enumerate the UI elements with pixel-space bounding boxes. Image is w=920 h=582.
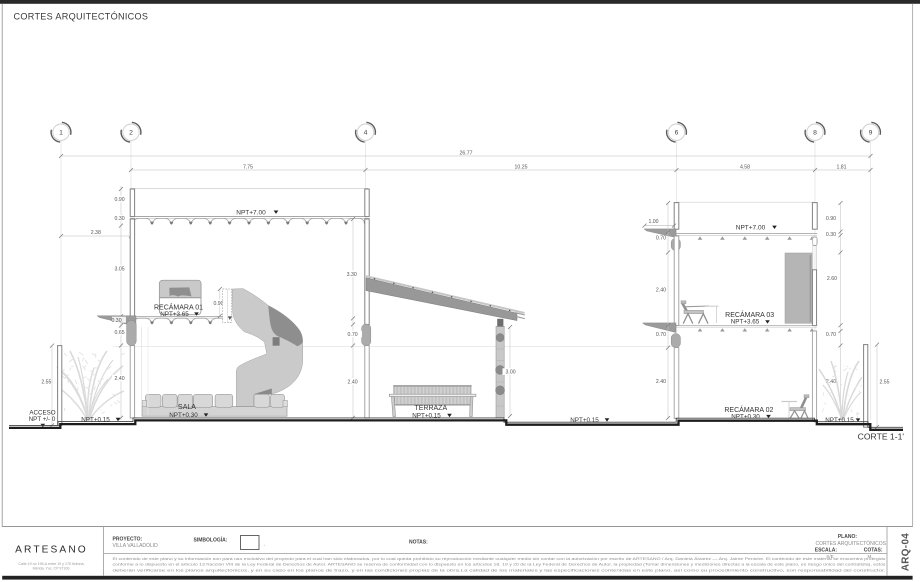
svg-text:0.90: 0.90 [115, 197, 125, 203]
svg-text:CORTES ARQUITECTÓNICOS: CORTES ARQUITECTÓNICOS [14, 12, 149, 22]
svg-text:CORTE 1-1': CORTE 1-1' [858, 431, 905, 441]
svg-text:2.40: 2.40 [656, 379, 666, 385]
svg-text:0.70: 0.70 [348, 332, 358, 338]
svg-text:SIMBOLOGÍA:: SIMBOLOGÍA: [194, 536, 228, 544]
svg-text:7.75: 7.75 [243, 164, 253, 170]
svg-text:NPT+0.15: NPT+0.15 [81, 416, 110, 423]
svg-text:NPT+7.00: NPT+7.00 [236, 209, 266, 216]
svg-text:CORTES ARQUITECTÓNICOS: CORTES ARQUITECTÓNICOS [816, 540, 887, 547]
svg-text:4: 4 [364, 130, 368, 137]
svg-text:Calle 19 no 195-A entre 19 y 1: Calle 19 no 195-A entre 19 y 175 Itzimná… [18, 562, 84, 566]
svg-text:6: 6 [675, 130, 679, 137]
svg-text:PLANO:: PLANO: [838, 534, 858, 540]
svg-text:NPT+3.65: NPT+3.65 [160, 311, 189, 318]
svg-text:NOTAS:: NOTAS: [409, 540, 428, 546]
svg-text:8: 8 [813, 130, 817, 137]
svg-text:0.30: 0.30 [111, 318, 121, 324]
svg-text:NPT+3.65: NPT+3.65 [731, 319, 760, 326]
svg-text:10.25: 10.25 [515, 164, 528, 170]
svg-text:PROYECTO:: PROYECTO: [113, 537, 143, 543]
svg-text:ARTESANO: ARTESANO [15, 545, 88, 556]
svg-text:3.00: 3.00 [506, 370, 516, 376]
svg-text:3.05: 3.05 [115, 266, 125, 272]
svg-text:2.55: 2.55 [41, 379, 51, 385]
svg-text:deberán verificarse en los pla: deberán verificarse en los planos arquit… [113, 569, 886, 573]
svg-text:2.60: 2.60 [827, 276, 837, 282]
svg-text:26.77: 26.77 [460, 150, 473, 156]
svg-text:2.40: 2.40 [115, 376, 125, 382]
svg-text:NPT +/- 0: NPT +/- 0 [29, 416, 56, 423]
svg-text:1.00: 1.00 [648, 219, 658, 225]
svg-text:NPT+7.00: NPT+7.00 [736, 224, 766, 231]
svg-text:Mérida, Yuc. CP 97100.: Mérida, Yuc. CP 97100. [33, 567, 71, 571]
svg-text:COTAS:: COTAS: [864, 548, 883, 554]
svg-text:TERRAZA: TERRAZA [414, 405, 447, 412]
svg-text:1.81: 1.81 [836, 164, 846, 170]
svg-text:9: 9 [869, 130, 873, 137]
svg-text:2.40: 2.40 [656, 288, 666, 294]
svg-text:2.38: 2.38 [91, 230, 101, 236]
svg-text:conforme a lo dispuesto en el: conforme a lo dispuesto en el artículo 1… [113, 563, 886, 567]
svg-text:0.90: 0.90 [213, 301, 223, 307]
svg-text:0.70: 0.70 [826, 332, 836, 338]
svg-text:SALA: SALA [178, 404, 196, 411]
svg-text:El contenido de este plano y s: El contenido de este plano y su informac… [113, 557, 886, 561]
svg-text:3.30: 3.30 [347, 272, 357, 278]
svg-text:2.40: 2.40 [348, 380, 358, 386]
svg-text:.: . [264, 542, 265, 548]
svg-text:0.90: 0.90 [826, 216, 836, 222]
svg-text:1: 1 [59, 130, 63, 137]
svg-text:NPT+0.15: NPT+0.15 [570, 417, 599, 424]
svg-text:2.55: 2.55 [879, 379, 889, 385]
svg-text:NPT+0.30: NPT+0.30 [731, 413, 760, 420]
svg-text:0.65: 0.65 [115, 330, 125, 336]
svg-text:0.70: 0.70 [656, 332, 666, 338]
svg-text:0.30: 0.30 [115, 216, 125, 222]
svg-text:NPT+0.15: NPT+0.15 [825, 417, 854, 424]
svg-text:2: 2 [129, 130, 133, 137]
svg-text:0.70: 0.70 [656, 236, 666, 242]
svg-text:4.58: 4.58 [740, 164, 750, 170]
svg-text:VILLA VALLADOLID: VILLA VALLADOLID [113, 543, 159, 549]
svg-text:0.30: 0.30 [826, 232, 836, 238]
svg-text:ESCALA:: ESCALA: [815, 548, 838, 554]
svg-text:ARQ-04: ARQ-04 [901, 533, 912, 571]
